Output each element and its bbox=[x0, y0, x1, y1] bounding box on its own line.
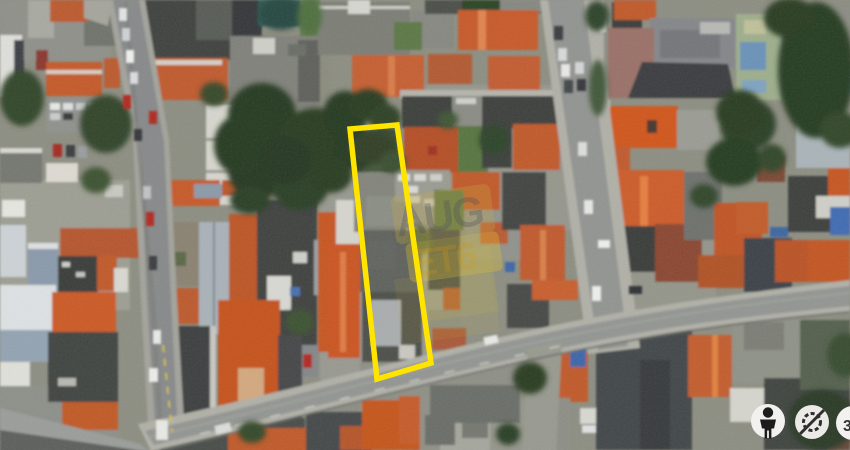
svg-text:3: 3 bbox=[843, 418, 850, 435]
